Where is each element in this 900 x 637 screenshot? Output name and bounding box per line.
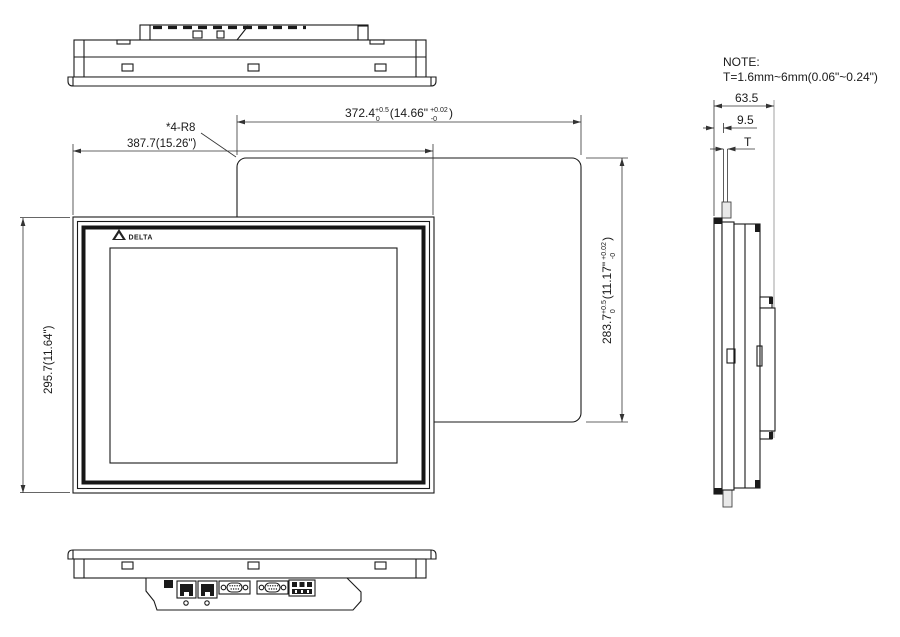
dim-cutout-width: 372.4+0.50(14.66"+0.02-0) <box>237 106 581 155</box>
side-view <box>714 202 775 507</box>
svg-text:283.7+0.50(11.17"+0.02-0): 283.7+0.50(11.17"+0.02-0) <box>600 237 617 344</box>
bottom-view <box>68 550 436 610</box>
cutout-height-mm-tol-plus: +0.5 <box>601 300 608 314</box>
rear-hump-side <box>760 308 775 431</box>
dim-panel-thickness: T <box>710 135 755 202</box>
cutout-height-mm: 283.7 <box>600 314 614 344</box>
cutout-height-inch-tol-plus: +0.02 <box>601 242 608 260</box>
com-port-db9-2 <box>257 581 288 594</box>
display-bezel <box>84 228 424 483</box>
technical-drawing-page: DELTA 372.4+0.50(14.66"+0.02-0) 387.7(15… <box>0 0 900 637</box>
depth-label: 63.5 <box>735 91 759 105</box>
thickness-label: T <box>744 135 752 149</box>
cutout-width-inch-tol-minus: -0 <box>431 116 437 123</box>
reset-switch <box>164 580 173 588</box>
bezel-depth-label: 9.5 <box>737 113 754 127</box>
cutout-height-inch: (11.17" <box>600 262 614 299</box>
cutout-width-mm: 372.4 <box>345 106 375 120</box>
dim-panel-height: 295.7(11.64") <box>20 218 70 494</box>
note-block: NOTE: T=1.6mm~6mm(0.06"~0.24") <box>723 55 878 84</box>
note-title: NOTE: <box>723 55 760 69</box>
cutout-height-inch-tol-minus: -0 <box>610 253 617 259</box>
clip-slot <box>117 40 130 44</box>
corner-radius-label: *4-R8 <box>166 122 195 134</box>
note-text: T=1.6mm~6mm(0.06"~0.24") <box>723 70 878 84</box>
mounting-wall-stub-top <box>722 202 731 218</box>
cutout-width-inch-tol-plus: +0.02 <box>430 107 448 114</box>
clip-slot <box>370 40 384 44</box>
com-port-db9-1 <box>219 581 250 594</box>
cutout-width-inch: (14.66" <box>390 106 428 120</box>
cutout-width-mm-tol-plus: +0.5 <box>375 107 389 114</box>
svg-text:372.4+0.50(14.66"+0.02-0): 372.4+0.50(14.66"+0.02-0) <box>345 106 453 123</box>
hump-end-cap <box>358 26 368 40</box>
dim-bezel-depth: 9.5 <box>703 113 757 133</box>
hmi-dimension-drawing: DELTA 372.4+0.50(14.66"+0.02-0) 387.7(15… <box>0 0 900 637</box>
mounting-wall-stub-bottom <box>723 490 732 507</box>
bezel-flange-side <box>714 218 722 494</box>
cutout-height-mm-tol-minus: 0 <box>610 309 617 313</box>
front-view: DELTA <box>73 158 581 493</box>
ethernet-port-1 <box>177 581 196 598</box>
body-side <box>734 224 760 488</box>
front-flange-top <box>68 77 436 86</box>
ethernet-port-2 <box>198 581 217 598</box>
front-flange-bottom <box>68 550 436 559</box>
panel-width-label: 387.7(15.26") <box>127 138 196 150</box>
cutout-width-mm-tol-minus: 0 <box>376 116 380 123</box>
brand-wordmark: DELTA <box>129 235 153 242</box>
panel-height-label: 295.7(11.64") <box>43 325 55 394</box>
top-view <box>68 25 436 86</box>
bezel-plate-side <box>722 222 734 490</box>
leader-line <box>201 133 236 157</box>
power-terminal-block <box>289 580 315 596</box>
dim-cutout-height: 283.7+0.50(11.17"+0.02-0) <box>586 158 628 422</box>
